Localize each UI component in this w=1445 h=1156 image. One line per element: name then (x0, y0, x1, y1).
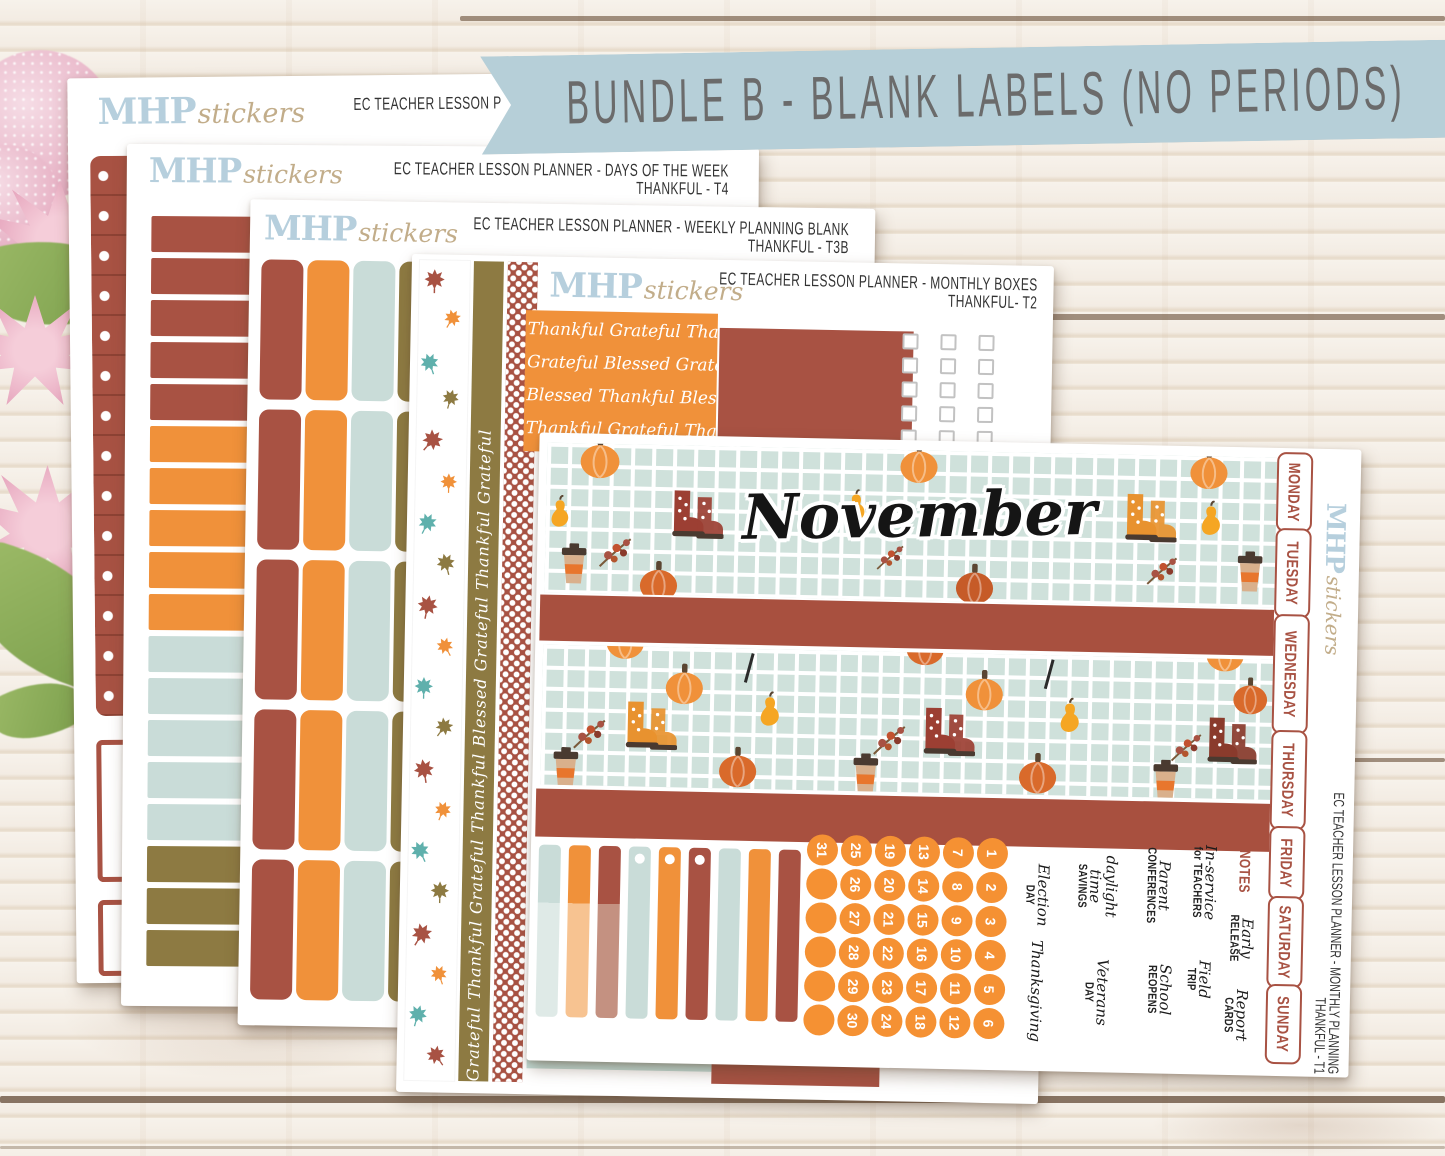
date-dot-blank (805, 936, 837, 968)
event-sticker-parent-conferences: ParentCONFERENCES (1133, 839, 1183, 932)
event-sticker-daylight-savings: daylight timeSAVINGS (1070, 836, 1124, 937)
umbrella-handle-icon (744, 653, 754, 683)
date-dot: 10 (940, 939, 972, 971)
mhp-stickers-logo: MHPstickers (549, 269, 744, 307)
blank-box-sticker (301, 560, 345, 701)
checkbox-sticker (902, 333, 918, 349)
logo-mhp: MHP (97, 90, 195, 133)
date-dot: 30 (837, 1005, 869, 1037)
pear-icon (548, 495, 573, 529)
date-dot: 28 (839, 937, 871, 969)
sheet-header: EC TEACHER LESSON PLANNER - MONTHLY PLAN… (1306, 784, 1350, 1075)
berry-sprig-icon (1145, 555, 1180, 587)
weekday-tab-sunday: SUNDAY (1263, 988, 1304, 1061)
sheet-header: EC TEACHER LESSON P (353, 94, 501, 114)
event-sticker-notes: NOTES (1224, 845, 1265, 898)
blank-box-sticker (344, 711, 388, 852)
date-dot: 9 (941, 905, 973, 937)
date-dot: 20 (874, 870, 906, 902)
rainboots-icon (1203, 714, 1258, 766)
pear-icon (757, 691, 784, 728)
coffee-cup-icon (1150, 759, 1181, 800)
tag-hole (695, 855, 705, 865)
berry-sprig-icon (597, 536, 634, 570)
pumpkin-icon (1015, 753, 1060, 795)
blank-box-sticker (305, 260, 349, 401)
weekday-tab-thursday: THURSDAY (1268, 734, 1310, 827)
logo-mhp: MHP (149, 151, 242, 192)
checkbox-sticker-grid (901, 333, 995, 447)
blank-box-sticker (298, 710, 342, 851)
logo-mhp: MHP (264, 208, 357, 249)
date-column: 31 (803, 834, 838, 1036)
mhp-stickers-logo: MHPstickers (149, 154, 343, 189)
tag-strip-sticker (655, 847, 681, 1019)
pumpkin-icon (577, 443, 624, 480)
mhp-stickers-logo: MHPstickers (97, 92, 305, 130)
date-dot: 21 (873, 904, 905, 936)
date-dot: 7 (943, 837, 975, 869)
checkbox-sticker (940, 334, 956, 350)
blank-box-sticker (252, 709, 296, 850)
pumpkin-icon (715, 746, 760, 788)
coffee-cup-icon (550, 747, 581, 789)
logo-mhp: MHP (1321, 503, 1348, 573)
rainboots-icon (919, 704, 976, 758)
november-header-sticker: November (544, 443, 1277, 608)
rainboots-icon (1120, 491, 1177, 545)
date-dot: 22 (873, 938, 905, 970)
wood-stain (1150, 1095, 1445, 1155)
tag-strip-sticker (625, 846, 651, 1018)
checkbox-sticker (978, 335, 994, 351)
sheet-header: EC TEACHER LESSON PLANNER - MONTHLY BOXE… (719, 270, 1038, 312)
date-column: 25 26 27 28 29 30 (837, 835, 872, 1037)
blank-box-sticker (255, 559, 299, 700)
date-column: 13 14 15 16 17 18 (905, 836, 940, 1038)
product-photo: MHPstickers EC TEACHER LESSON P MHPstick… (0, 0, 1445, 1156)
tag-hole (635, 854, 645, 864)
date-dot-blank (805, 902, 837, 934)
flag-strip-stickers (535, 845, 801, 1022)
date-dot-blank (803, 1004, 835, 1036)
date-dot: 4 (974, 940, 1006, 972)
pattern-strip-sticker (540, 645, 1273, 800)
event-sticker-report-cards: ReportCARDS (1213, 979, 1258, 1052)
wood-seam (460, 16, 1445, 21)
checkbox-sticker (902, 357, 918, 373)
logo-stickers: stickers (358, 218, 458, 249)
solid-strip-sticker (745, 849, 771, 1021)
logo-stickers: stickers (243, 160, 343, 190)
date-dot: 8 (942, 871, 974, 903)
logo-mhp: MHP (549, 266, 642, 308)
blank-box-sticker (349, 411, 393, 552)
blank-box-sticker (296, 860, 340, 1001)
checkbox-sticker (940, 358, 956, 374)
pumpkin-icon (603, 645, 648, 660)
blank-box-sticker (257, 409, 301, 550)
date-column: 1 2 3 4 5 6 (973, 838, 1008, 1040)
coffee-cup-icon (1234, 551, 1265, 593)
umbrella-handle-icon (1044, 659, 1054, 689)
date-dot: 3 (975, 906, 1007, 938)
solid-strip-sticker (775, 850, 801, 1022)
weekday-tab-wednesday: WEDNESDAY (1270, 618, 1312, 731)
logo-stickers: stickers (1322, 576, 1344, 656)
coffee-cup-icon (559, 543, 590, 585)
date-dot: 16 (907, 938, 939, 970)
date-dot: 6 (973, 1008, 1005, 1040)
flag-strip-sticker (595, 846, 621, 1018)
blank-box-sticker (303, 410, 347, 551)
blank-box-sticker (342, 861, 386, 1002)
coffee-cup-icon (850, 753, 881, 795)
bundle-banner: BUNDLE B - BLANK LABELS (NO PERIODS) (480, 39, 1445, 154)
solid-strip-sticker (715, 848, 741, 1020)
checkbox-sticker (939, 406, 955, 422)
date-dot: 19 (875, 836, 907, 868)
date-dot: 5 (974, 974, 1006, 1006)
event-sticker-thanksgiving: Thanksgiving (1010, 934, 1060, 1047)
date-dot-blank (806, 868, 838, 900)
sheet-header: EC TEACHER LESSON PLANNER - WEEKLY PLANN… (473, 215, 849, 257)
event-sticker-early-release: EarlyRELEASE (1218, 899, 1264, 978)
date-column: 7 8 9 10 11 12 (939, 837, 974, 1039)
rainboots-icon (667, 487, 724, 541)
date-dot: 31 (807, 834, 839, 866)
event-sticker-election-day: ElectionDAY (1012, 848, 1062, 941)
checkbox-sticker (901, 381, 917, 397)
logo-stickers: stickers (197, 98, 305, 130)
date-dot-blank (804, 970, 836, 1002)
blank-box-sticker (347, 561, 391, 702)
checkbox-sticker (901, 405, 917, 421)
mhp-stickers-logo: MHP stickers (1312, 459, 1355, 700)
date-column: 19 20 21 22 23 24 (871, 836, 906, 1038)
berry-sprig-icon (871, 723, 908, 757)
date-dot: 13 (909, 836, 941, 868)
blank-box-sticker (250, 859, 294, 1000)
mhp-stickers-logo: MHPstickers (264, 211, 458, 248)
date-dot: 26 (840, 869, 872, 901)
date-dot: 18 (905, 1006, 937, 1038)
rainboots-icon (621, 698, 678, 752)
pumpkin-icon (952, 563, 997, 605)
date-dot: 15 (907, 904, 939, 936)
date-dot: 14 (908, 870, 940, 902)
checkbox-sticker (977, 383, 993, 399)
date-dot: 1 (977, 838, 1009, 870)
event-sticker-veterans-day: VeteransDAY (1073, 952, 1119, 1033)
tag-hole (665, 854, 675, 864)
date-dot: 24 (871, 1006, 903, 1038)
checkbox-sticker (939, 382, 955, 398)
tag-strip-sticker (685, 848, 711, 1020)
date-dot: 27 (839, 903, 871, 935)
date-dot: 29 (838, 971, 870, 1003)
date-dot: 2 (976, 872, 1008, 904)
pumpkin-icon (1187, 448, 1232, 490)
checkbox-sticker (978, 359, 994, 375)
flag-strip-sticker (535, 845, 561, 1017)
weekday-tab-saturday: SATURDAY (1264, 900, 1306, 985)
date-dot: 17 (906, 972, 938, 1004)
wood-seam (1015, 314, 1445, 320)
berry-sprig-icon (571, 717, 608, 751)
sheet-header: EC TEACHER LESSON PLANNER - DAYS OF THE … (394, 160, 729, 198)
date-dot-grid: 31 25 26 27 28 29 30 19 20 21 22 23 (803, 834, 1008, 1039)
pumpkin-icon (1230, 677, 1271, 715)
banner-text: BUNDLE B - BLANK LABELS (NO PERIODS) (536, 54, 1406, 139)
sticker-sheet-t1-november: November (527, 432, 1362, 1077)
date-dot: 11 (940, 973, 972, 1005)
pear-icon (1198, 500, 1225, 537)
date-dot: 25 (841, 835, 873, 867)
blank-box-sticker (259, 259, 303, 400)
date-dot: 12 (939, 1007, 971, 1039)
date-dot: 23 (872, 972, 904, 1004)
blank-box-sticker (351, 261, 395, 402)
weekday-tab-tuesday: TUESDAY (1272, 532, 1314, 615)
flag-strip-sticker (565, 845, 591, 1017)
weekday-tab-monday: MONDAY (1274, 456, 1315, 529)
checkbox-sticker (977, 407, 993, 423)
weekday-tab-friday: FRIDAY (1266, 830, 1307, 897)
wood-seam (1348, 758, 1445, 762)
month-title: November (742, 476, 1098, 554)
pear-icon (1056, 697, 1083, 734)
